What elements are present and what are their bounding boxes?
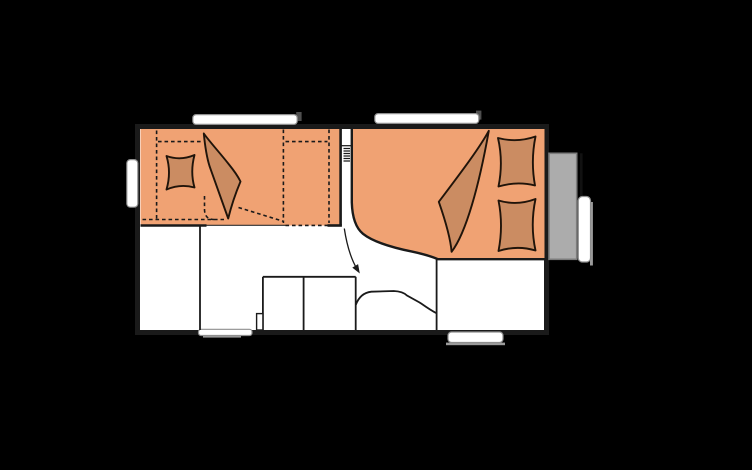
roof-window-right: [375, 114, 479, 124]
front-pillow-upper: [498, 137, 536, 187]
front-double-bed: [352, 129, 545, 259]
entry-door: [448, 332, 503, 343]
gas-locker: [549, 153, 577, 259]
floorplan-canvas: [0, 0, 752, 470]
front-pillow-lower: [499, 199, 536, 251]
rear-window: [127, 160, 138, 208]
caravan-floorplan: [0, 0, 752, 470]
bottom-window: [199, 329, 253, 335]
rear-lounge-berth: [141, 129, 342, 226]
rear-pillow: [167, 155, 195, 190]
front-window-bar: [578, 197, 590, 263]
front-trim-bar: [580, 153, 583, 196]
roof-window-left: [193, 115, 297, 125]
kitchen-step: [257, 314, 263, 330]
